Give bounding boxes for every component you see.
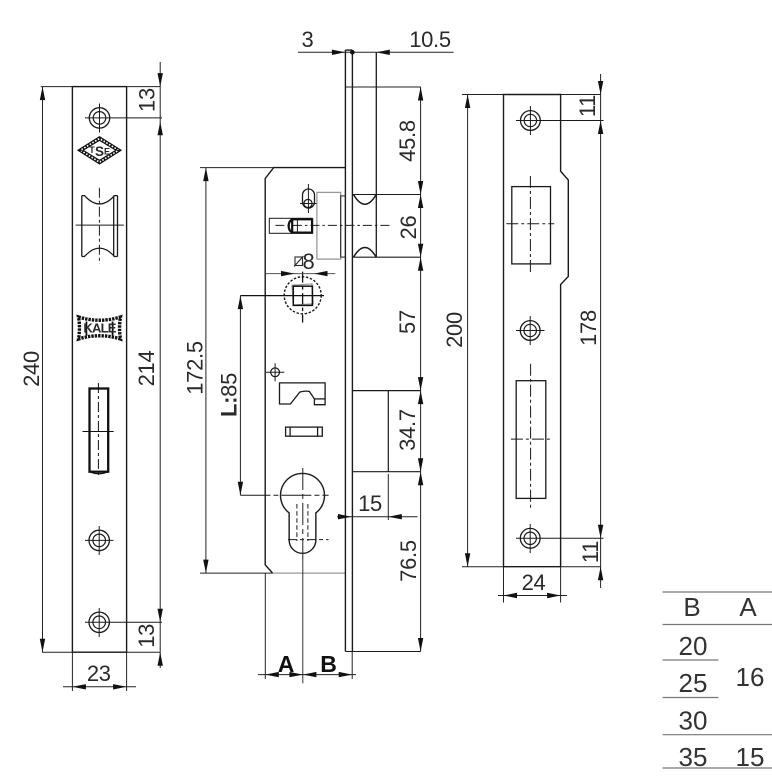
svg-text:B: B: [320, 651, 337, 677]
svg-text:240: 240: [19, 351, 44, 387]
svg-text:20: 20: [679, 631, 708, 661]
svg-text:8: 8: [303, 249, 315, 274]
svg-text:45.8: 45.8: [395, 120, 420, 162]
svg-text:214: 214: [134, 351, 159, 387]
svg-text:172.5: 172.5: [183, 341, 208, 395]
svg-text:A: A: [278, 651, 295, 677]
svg-text:E: E: [104, 147, 110, 157]
svg-text:10.5: 10.5: [409, 27, 451, 52]
svg-text:34.7: 34.7: [395, 409, 420, 451]
svg-text:3: 3: [302, 27, 314, 52]
svg-text:S: S: [95, 144, 104, 159]
svg-text:16: 16: [736, 662, 765, 692]
svg-text:15: 15: [358, 491, 382, 516]
svg-text:B: B: [683, 592, 700, 622]
svg-text:24: 24: [522, 570, 546, 595]
svg-text:13: 13: [135, 88, 160, 112]
svg-text:26: 26: [396, 216, 421, 240]
svg-text:200: 200: [442, 312, 467, 348]
svg-text:30: 30: [679, 706, 708, 736]
svg-text:KALE: KALE: [83, 321, 116, 336]
svg-text:13: 13: [134, 624, 159, 648]
svg-text:35: 35: [679, 742, 708, 772]
svg-text:76.5: 76.5: [396, 540, 421, 582]
svg-text:23: 23: [87, 661, 111, 686]
svg-text:57: 57: [395, 310, 420, 334]
svg-text:A: A: [739, 592, 757, 622]
svg-text:25: 25: [679, 668, 708, 698]
svg-text:15: 15: [736, 742, 765, 772]
svg-text:178: 178: [576, 310, 601, 346]
svg-text:11: 11: [578, 541, 603, 563]
svg-text:11: 11: [575, 95, 600, 117]
svg-text:L:85: L:85: [217, 373, 242, 417]
